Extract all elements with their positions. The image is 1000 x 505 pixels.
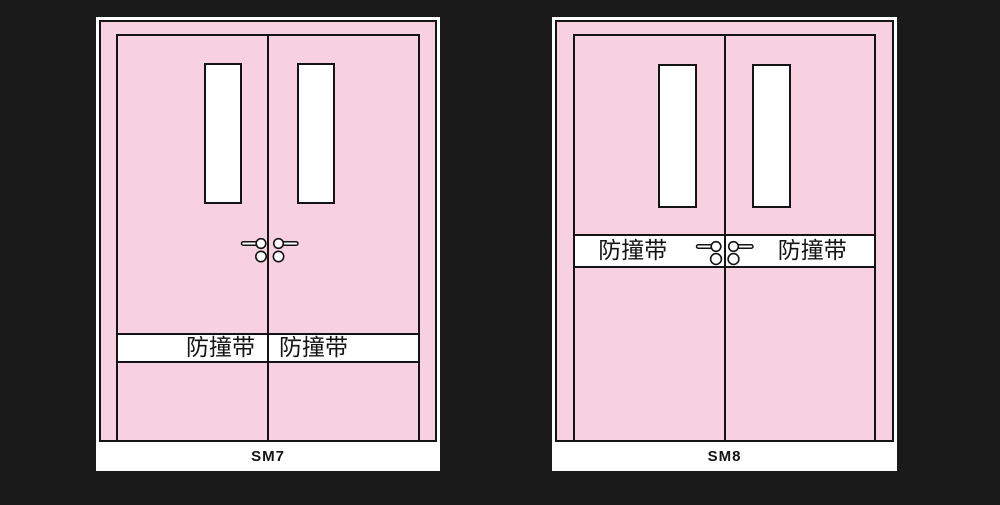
vision-window-left: [658, 64, 697, 208]
door-figure-sm7: 防撞带 防撞带 SM7: [96, 17, 440, 471]
door-frame: 防撞带 防撞带: [99, 20, 437, 442]
door-figure-sm8: 防撞带 防撞带 SM8: [552, 17, 897, 471]
door-leaves: 防撞带 防撞带: [116, 34, 420, 440]
door-caption: SM7: [96, 442, 440, 471]
catalog-panel: 防撞带 防撞带 SM7 防: [0, 0, 1000, 505]
bumper-strip-label-left: 防撞带: [118, 335, 268, 361]
vision-window-right: [297, 63, 335, 204]
center-meeting-stile: [724, 36, 726, 440]
vision-window-left: [204, 63, 242, 204]
door-leaves: 防撞带 防撞带: [573, 34, 876, 440]
door-caption: SM8: [552, 442, 897, 471]
bumper-strip-label-right: 防撞带: [268, 335, 418, 361]
door-handle-icon: [240, 236, 300, 264]
door-handle-icon: [695, 239, 755, 267]
vision-window-right: [752, 64, 791, 208]
door-frame: 防撞带 防撞带: [555, 20, 894, 442]
